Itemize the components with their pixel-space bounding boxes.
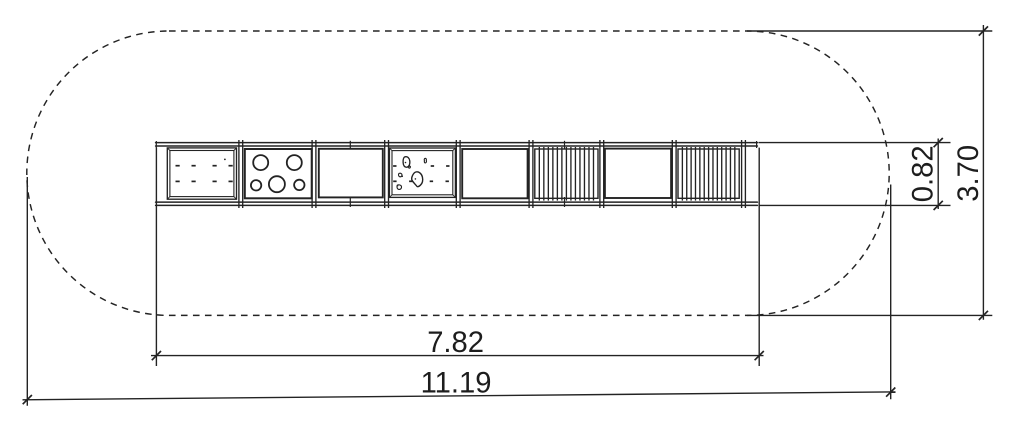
svg-text:0.82: 0.82: [908, 145, 940, 202]
svg-text:7.82: 7.82: [427, 327, 484, 359]
svg-text:11.19: 11.19: [421, 368, 492, 400]
svg-text:3.70: 3.70: [953, 145, 985, 202]
